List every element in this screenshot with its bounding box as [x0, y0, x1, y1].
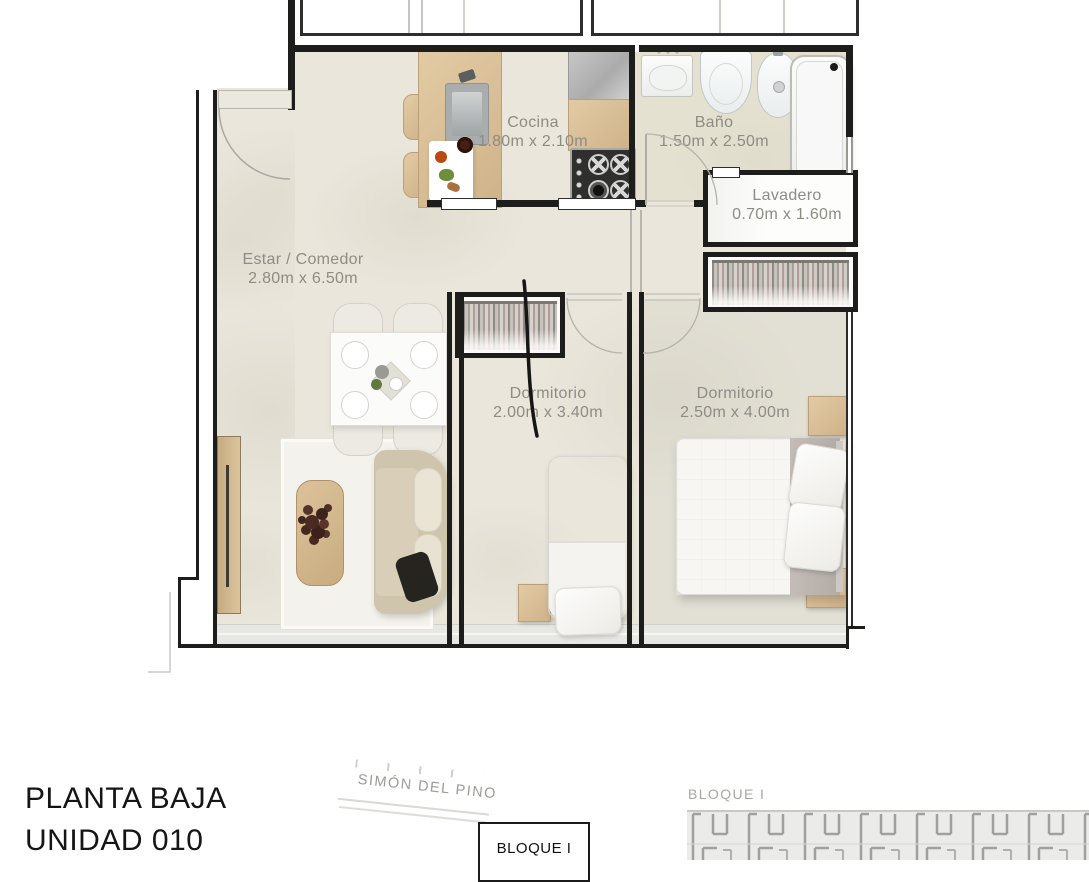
plant [313, 521, 319, 527]
tv-console [217, 436, 241, 614]
room-name: Baño [659, 113, 769, 132]
hanging-clothes [712, 260, 849, 305]
wardrobe-bedroom1 [455, 292, 565, 358]
upper-structure-left [300, 0, 583, 36]
room-name: Estar / Comedor [243, 250, 364, 269]
room-label-dormitorio-1: Dormitorio 2.00m x 3.40m [493, 384, 603, 422]
room-dimensions: 1.80m x 2.10m [478, 132, 588, 151]
bathtub-drain [830, 63, 838, 71]
bidet-drain [773, 81, 785, 93]
duvet [676, 438, 792, 595]
hanging-clothes [463, 301, 557, 350]
wall-left-inner [213, 90, 217, 647]
bloque-button[interactable]: BLOQUE I [478, 822, 590, 882]
wall-bedroom1-left [447, 292, 452, 644]
window-line [846, 312, 848, 644]
laundry-vent [712, 167, 740, 178]
plate [341, 341, 369, 369]
wall-kitchen-bath-divider [629, 45, 635, 207]
bathtub-basin [796, 61, 843, 179]
sofa [374, 450, 448, 614]
room-dimensions: 2.50m x 4.00m [680, 403, 790, 422]
serving-tray [429, 141, 473, 201]
site-plan-thumbnail[interactable] [687, 808, 1089, 860]
bread [446, 181, 461, 193]
room-dimensions: 2.80m x 6.50m [243, 269, 364, 288]
passage-opening [558, 198, 636, 210]
wall-segment [783, 0, 785, 33]
wall-left-jog [178, 577, 181, 647]
site-plan-drawing [687, 808, 1089, 860]
hall-jamb-line [640, 210, 642, 292]
street-line [339, 806, 486, 823]
coffee-table [296, 480, 344, 586]
wall-segment [719, 0, 721, 33]
wall-segment [421, 0, 423, 33]
wall-segment [408, 0, 410, 33]
window-right-bath [846, 137, 853, 173]
wall-segment [463, 0, 465, 33]
wall-bedroom1-left [459, 292, 464, 644]
window-line [851, 137, 853, 173]
window-line [851, 312, 853, 644]
room-name: Dormitorio [680, 384, 790, 403]
nightstand [518, 584, 551, 622]
wall-left-jog [178, 577, 199, 580]
wall-right-step [846, 626, 865, 649]
stove-burner [588, 154, 609, 175]
room-dimensions: 0.70m x 1.60m [732, 205, 842, 224]
room-name: Lavadero [732, 186, 842, 205]
wall-left-outer [196, 90, 199, 580]
passage-opening [441, 198, 497, 210]
bloque-button-label: BLOQUE I [497, 840, 572, 857]
wall-top-bath [639, 45, 853, 52]
pillow [554, 586, 622, 636]
plate [341, 391, 369, 419]
entry-door [218, 90, 292, 109]
room-label-cocina: Cocina 1.80m x 2.10m [478, 113, 588, 151]
wall-right-bath [846, 45, 853, 137]
nightstand [808, 396, 847, 436]
greens [439, 169, 454, 181]
sink-bowl [649, 65, 687, 91]
wall-bedrooms-divider [639, 292, 644, 644]
bathroom-sink [641, 55, 693, 97]
room-label-lavadero: Lavadero 0.70m x 1.60m [732, 186, 842, 224]
wall-bath-door-jamb [694, 200, 705, 207]
wardrobe-hall [703, 252, 858, 312]
room-name: Dormitorio [493, 384, 603, 403]
room-name: Cocina [478, 113, 588, 132]
kitchen-faucet [458, 69, 476, 83]
stove-burner [610, 154, 631, 175]
plate [410, 341, 438, 369]
plan-title-line2: UNIDAD 010 [25, 824, 203, 858]
centerpiece-dish [375, 365, 389, 379]
room-dimensions: 1.50m x 2.50m [659, 132, 769, 151]
plan-title-line1: PLANTA BAJA [25, 782, 227, 816]
sofa-cushion [414, 468, 442, 532]
wall-bedrooms-divider [627, 292, 632, 644]
fruit [435, 151, 447, 163]
site-plan-label: BLOQUE I [688, 786, 765, 802]
tv-screen [226, 465, 229, 587]
refrigerator [568, 45, 631, 101]
hall-jamb-line [630, 210, 632, 292]
floor-plan: Cocina 1.80m x 2.10m Baño 1.50m x 2.50m … [0, 0, 1089, 700]
plate [410, 391, 438, 419]
bowl [457, 137, 473, 153]
room-label-bano: Baño 1.50m x 2.50m [659, 113, 769, 151]
pillow [783, 501, 847, 573]
toilet-seat [709, 63, 743, 105]
room-label-dormitorio-2: Dormitorio 2.50m x 4.00m [680, 384, 790, 422]
property-line [148, 592, 170, 672]
window-band-right [846, 312, 853, 644]
wall-bath-door-jamb [635, 200, 646, 207]
room-label-estar-comedor: Estar / Comedor 2.80m x 6.50m [243, 250, 364, 288]
bathtub [790, 55, 851, 187]
room-dimensions: 2.00m x 3.40m [493, 403, 603, 422]
window-line [846, 137, 848, 173]
centerpiece-plant [371, 379, 382, 390]
wall-top-kitchen [295, 45, 633, 52]
stove-knobs [575, 156, 583, 202]
centerpiece-cup [389, 377, 403, 391]
double-bed [676, 438, 845, 595]
upper-structure-right [591, 0, 859, 36]
wall-bottom [178, 644, 855, 648]
dining-table [330, 332, 447, 426]
